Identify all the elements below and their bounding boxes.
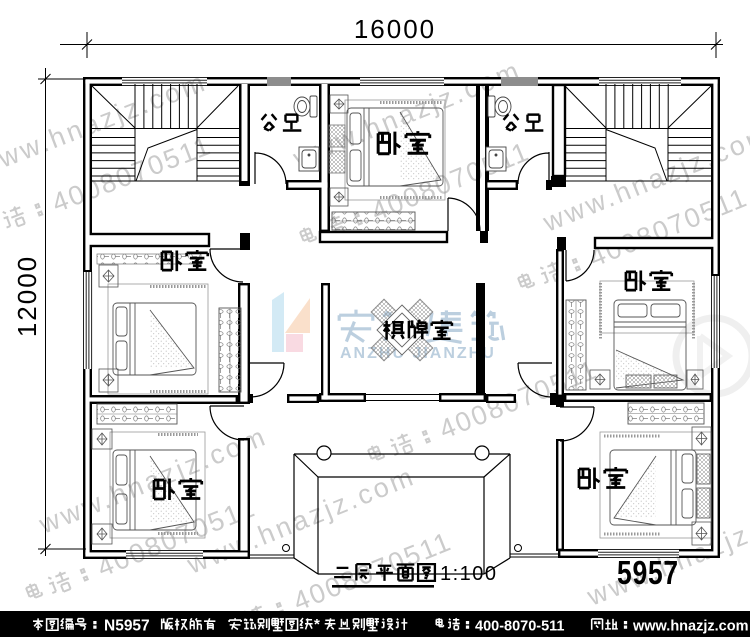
- svg-text:N5957: N5957: [104, 618, 150, 635]
- svg-text:16000: 16000: [354, 14, 436, 44]
- svg-text:5957: 5957: [617, 555, 679, 591]
- svg-text:1:100: 1:100: [440, 563, 498, 585]
- svg-text:400-8070-511: 400-8070-511: [475, 619, 565, 635]
- svg-text:12000: 12000: [12, 255, 42, 337]
- svg-text:www.hnazjz.com: www.hnazjz.com: [632, 619, 748, 635]
- svg-text:*: *: [314, 616, 320, 633]
